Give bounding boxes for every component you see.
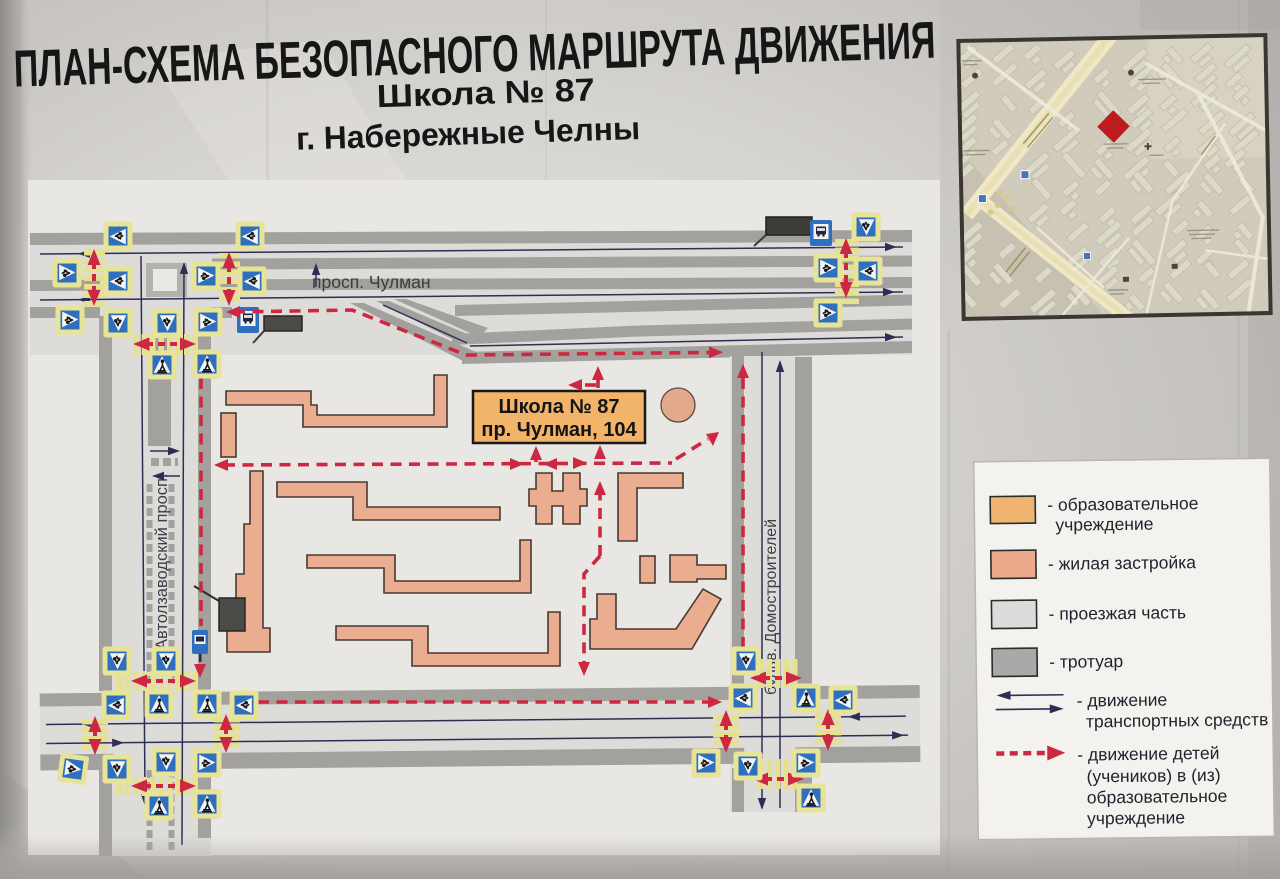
svg-text:учреждение: учреждение	[1087, 807, 1185, 828]
svg-text:Школа № 87: Школа № 87	[376, 71, 595, 114]
svg-text:- проезжая часть: - проезжая часть	[1048, 602, 1186, 624]
svg-text:транспортных средств: транспортных средств	[1086, 709, 1269, 731]
svg-text:- жилая застройка: - жилая застройка	[1048, 552, 1196, 574]
svg-text:пр. Чулман, 104: пр. Чулман, 104	[481, 419, 637, 441]
svg-text:- тротуар: - тротуар	[1049, 651, 1123, 672]
svg-text:- образовательное: - образовательное	[1047, 493, 1198, 515]
svg-text:просп. Чулман: просп. Чулман	[312, 272, 431, 292]
svg-text:(учеников) в (из): (учеников) в (из)	[1086, 765, 1220, 787]
svg-text:- движение детей: - движение детей	[1077, 743, 1219, 765]
svg-text:Школа № 87: Школа № 87	[498, 396, 619, 418]
svg-text:учреждение: учреждение	[1055, 514, 1153, 535]
svg-text:Автолзаводский просп.: Автолзаводский просп.	[153, 473, 171, 650]
svg-text:- движение: - движение	[1077, 689, 1168, 710]
svg-text:образовательное: образовательное	[1087, 786, 1228, 808]
